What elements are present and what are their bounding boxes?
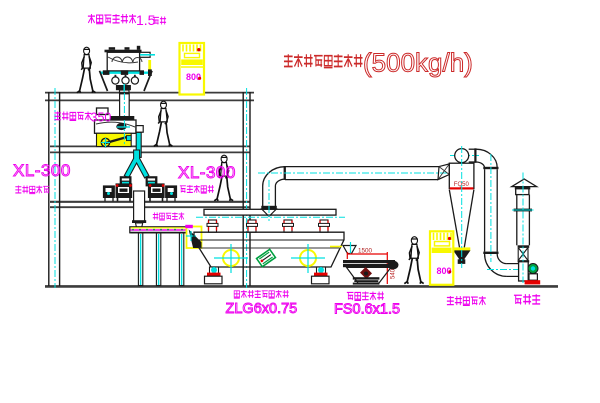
svg-text:FS0.6x1.5: FS0.6x1.5 bbox=[334, 302, 400, 318]
svg-text:XL-300: XL-300 bbox=[178, 163, 236, 182]
svg-text:(500kg/h): (500kg/h) bbox=[363, 48, 473, 78]
svg-text:1500: 1500 bbox=[358, 247, 373, 254]
svg-text:350: 350 bbox=[91, 111, 112, 125]
svg-text:XL-300: XL-300 bbox=[13, 161, 71, 180]
svg-text:ZLG6x0.75: ZLG6x0.75 bbox=[226, 301, 298, 317]
svg-text:1.5: 1.5 bbox=[136, 12, 156, 28]
svg-text:540: 540 bbox=[391, 268, 397, 279]
